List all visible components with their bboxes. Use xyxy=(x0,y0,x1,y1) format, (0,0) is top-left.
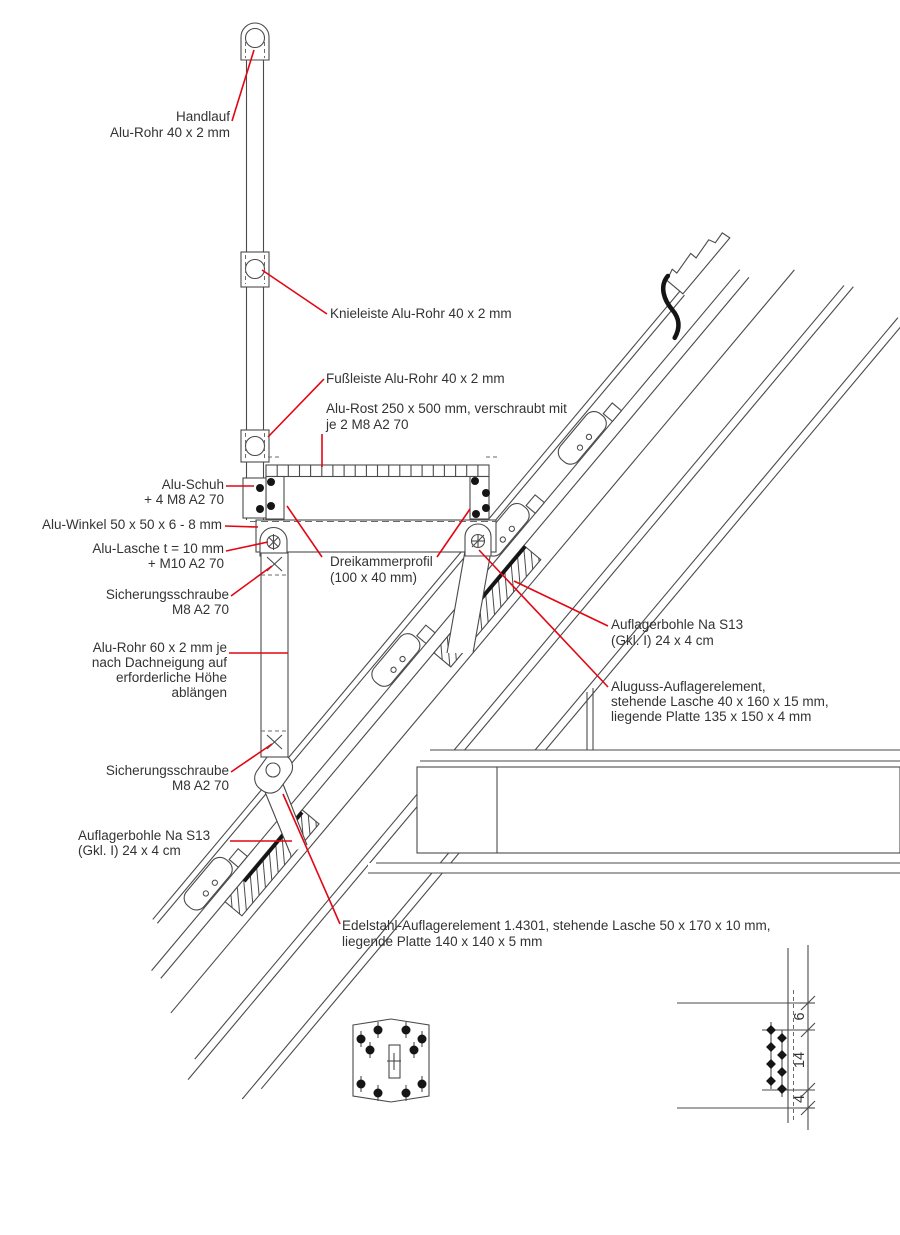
svg-text:stehende Lasche 40 x 160 x 15: stehende Lasche 40 x 160 x 15 mm, xyxy=(611,694,829,709)
leader-aluwinkel xyxy=(225,526,258,527)
label-aluguss: Aluguss-Auflagerelement, xyxy=(611,679,766,694)
dim-4: 4 xyxy=(792,1095,808,1103)
label-knieleiste: Knieleiste Alu-Rohr 40 x 2 mm xyxy=(330,306,512,321)
roof-railing-detail-drawing: 6 14 4 Handlauf Alu-Rohr 40 x 2 mm Kniel… xyxy=(0,0,900,1235)
dim-14: 14 xyxy=(792,1052,808,1068)
fastener-dimension-detail: 6 14 4 xyxy=(677,945,815,1130)
label-aluschuh: Alu-Schuh xyxy=(162,477,224,492)
leader-handlauf xyxy=(232,50,254,121)
label-auflagerbohle-links: Auflagerbohle Na S13 xyxy=(78,828,210,843)
svg-text:(Gkl. I) 24 x 4 cm: (Gkl. I) 24 x 4 cm xyxy=(78,843,181,858)
svg-text:nach Dachneigung auf: nach Dachneigung auf xyxy=(92,655,227,670)
svg-text:je 2 M8 A2 70: je 2 M8 A2 70 xyxy=(325,417,409,432)
leader-aluguss xyxy=(479,550,608,687)
label-aluwinkel: Alu-Winkel 50 x 50 x 6 - 8 mm xyxy=(42,517,222,532)
svg-text:M8 A2 70: M8 A2 70 xyxy=(172,778,229,793)
label-sicherung2: Sicherungsschraube xyxy=(106,763,229,778)
lower-support-bracket xyxy=(250,747,307,853)
label-alurost: Alu-Rost 250 x 500 mm, verschraubt mit xyxy=(326,401,567,416)
svg-text:Alu-Rohr 40 x 2 mm: Alu-Rohr 40 x 2 mm xyxy=(110,125,230,140)
svg-text:(100 x 40 mm): (100 x 40 mm) xyxy=(330,570,417,585)
sash-clamp-cap xyxy=(368,617,435,691)
label-edelstahl: Edelstahl-Auflagerelement 1.4301, stehen… xyxy=(342,918,771,933)
technical-drawing-page: 6 14 4 Handlauf Alu-Rohr 40 x 2 mm Kniel… xyxy=(0,0,900,1235)
knee-tube-section xyxy=(246,260,265,279)
label-handlauf: Handlauf xyxy=(176,109,230,124)
lower-tube xyxy=(261,553,288,757)
label-sicherung1: Sicherungsschraube xyxy=(106,587,229,602)
svg-text:(Gkl. I) 24 x 4 cm: (Gkl. I) 24 x 4 cm xyxy=(611,633,714,648)
svg-text:liegende Platte 140 x 140 x 5: liegende Platte 140 x 140 x 5 mm xyxy=(342,934,542,949)
svg-text:+ 4 M8 A2 70: + 4 M8 A2 70 xyxy=(144,492,224,507)
knee-rail-clamp xyxy=(241,252,269,287)
handrail-clamp xyxy=(241,23,269,60)
svg-text:ablängen: ablängen xyxy=(171,685,227,700)
fastener-markers xyxy=(766,1022,787,1097)
label-alulasche: Alu-Lasche t = 10 mm xyxy=(92,541,224,556)
svg-text:M8 A2 70: M8 A2 70 xyxy=(172,602,229,617)
dim-6: 6 xyxy=(792,1012,808,1020)
bolt-hole xyxy=(266,763,280,777)
handrail-tube-section xyxy=(246,29,265,48)
foot-tube-section xyxy=(246,437,265,456)
beam xyxy=(417,767,900,853)
base-plate-detail xyxy=(353,1019,429,1102)
leader-fussleiste xyxy=(268,379,324,437)
svg-text:+ M10 A2 70: + M10 A2 70 xyxy=(148,556,224,571)
label-auflagerbohle-rechts: Auflagerbohle Na S13 xyxy=(611,617,743,632)
left-lasche xyxy=(260,528,287,557)
foot-rail-clamp xyxy=(241,430,269,462)
svg-text:liegende Platte 135 x 150 x 4: liegende Platte 135 x 150 x 4 mm xyxy=(611,709,811,724)
leader-auflagerbohle-rechts xyxy=(514,581,608,626)
label-dreikammer: Dreikammerprofil xyxy=(330,554,433,569)
leader-edelstahl xyxy=(283,794,340,924)
label-alurohr60: Alu-Rohr 60 x 2 mm je xyxy=(93,640,227,655)
svg-text:erforderliche Höhe: erforderliche Höhe xyxy=(116,670,227,685)
leader-knieleiste xyxy=(262,270,327,314)
label-fussleiste: Fußleiste Alu-Rohr 40 x 2 mm xyxy=(326,371,505,386)
